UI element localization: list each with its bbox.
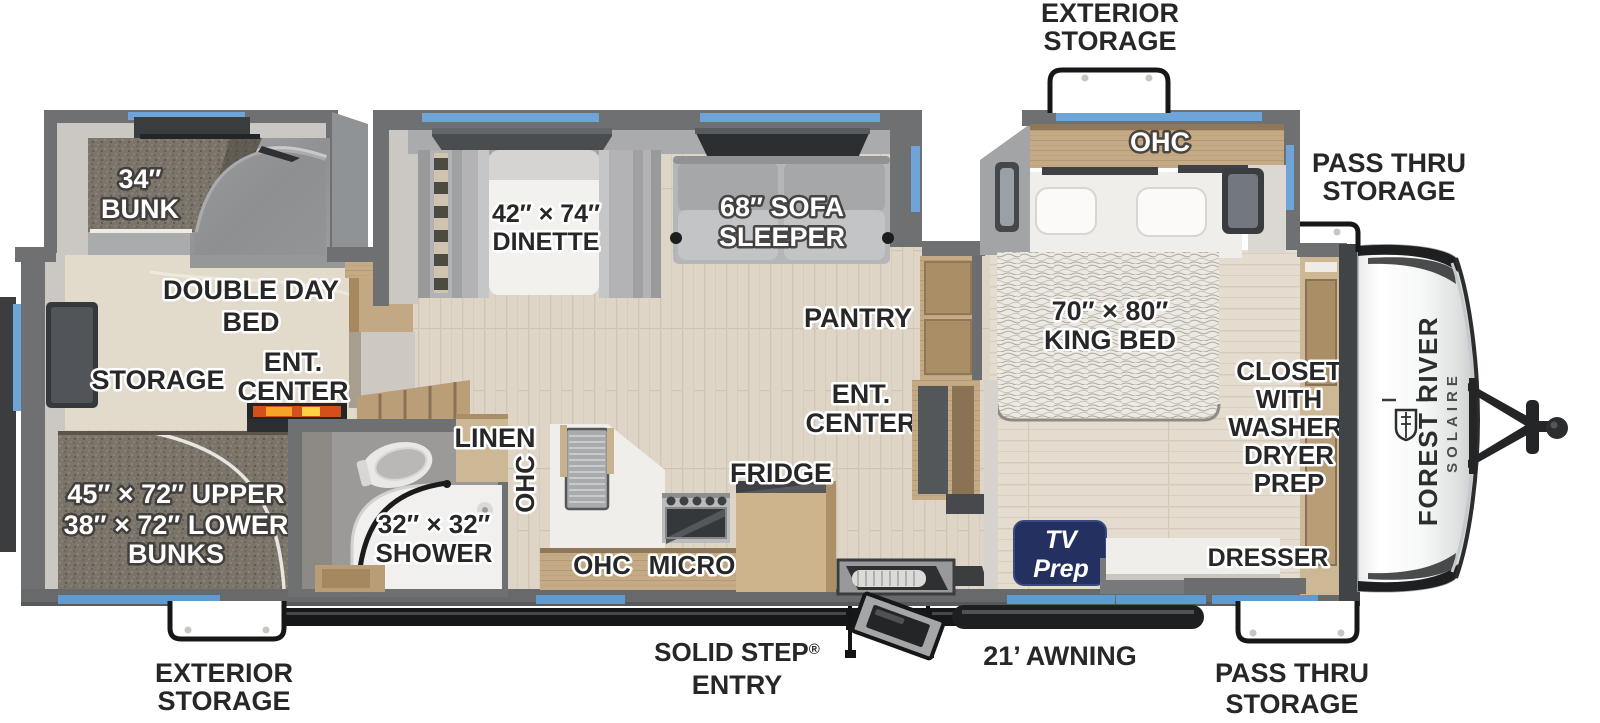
svg-text:PASS THRU: PASS THRU	[1215, 658, 1369, 688]
svg-text:42″ × 74″: 42″ × 74″	[492, 200, 600, 228]
svg-text:21’ AWNING: 21’ AWNING	[983, 641, 1137, 671]
svg-text:TV: TV	[1045, 526, 1079, 554]
svg-text:34″: 34″	[119, 164, 162, 194]
svg-text:BED: BED	[222, 307, 279, 337]
svg-text:STORAGE: STORAGE	[1225, 689, 1358, 719]
svg-text:OHC: OHC	[573, 550, 631, 580]
svg-text:FRIDGE: FRIDGE	[730, 458, 832, 488]
svg-text:DRYER: DRYER	[1244, 440, 1334, 470]
svg-text:70″ × 80″: 70″ × 80″	[1052, 296, 1169, 326]
svg-text:SOLAIRE: SOLAIRE	[1444, 371, 1461, 473]
svg-text:LINEN: LINEN	[455, 423, 536, 453]
svg-text:STORAGE: STORAGE	[1322, 176, 1455, 206]
svg-text:32″ × 32″: 32″ × 32″	[378, 509, 490, 539]
svg-text:PASS THRU: PASS THRU	[1312, 148, 1466, 178]
svg-text:WASHER/: WASHER/	[1228, 412, 1349, 442]
svg-text:Prep: Prep	[1033, 555, 1089, 583]
svg-text:DRESSER: DRESSER	[1208, 544, 1329, 572]
svg-text:38″ × 72″ LOWER: 38″ × 72″ LOWER	[64, 510, 289, 540]
svg-text:45″ × 72″ UPPER: 45″ × 72″ UPPER	[67, 479, 284, 509]
svg-text:DINETTE: DINETTE	[493, 228, 600, 256]
svg-text:PREP: PREP	[1254, 468, 1325, 498]
svg-text:ENTRY: ENTRY	[692, 670, 783, 700]
svg-text:CLOSET: CLOSET	[1236, 356, 1342, 386]
svg-text:OHC: OHC	[510, 455, 540, 513]
svg-text:SLEEPER: SLEEPER	[719, 222, 845, 252]
svg-text:CENTER: CENTER	[805, 408, 916, 438]
svg-text:STORAGE: STORAGE	[1043, 26, 1176, 56]
svg-text:WITH: WITH	[1256, 384, 1322, 414]
svg-text:ENT.: ENT.	[264, 347, 323, 377]
svg-text:SHOWER: SHOWER	[376, 538, 493, 568]
svg-text:STORAGE: STORAGE	[91, 365, 224, 395]
svg-text:OHC: OHC	[1130, 127, 1190, 157]
svg-text:MICRO: MICRO	[649, 550, 736, 580]
svg-text:KING BED: KING BED	[1044, 325, 1176, 355]
svg-text:DOUBLE DAY: DOUBLE DAY	[163, 275, 339, 305]
svg-text:BUNKS: BUNKS	[128, 539, 224, 569]
svg-text:ENT.: ENT.	[832, 379, 891, 409]
svg-text:FOREST RIVER: FOREST RIVER	[1413, 316, 1443, 526]
svg-text:SOLID STEP®: SOLID STEP®	[654, 637, 820, 667]
svg-text:BUNK: BUNK	[101, 194, 179, 224]
svg-text:EXTERIOR: EXTERIOR	[1041, 0, 1179, 28]
svg-text:STORAGE: STORAGE	[157, 686, 290, 716]
svg-text:68″ SOFA: 68″ SOFA	[720, 192, 844, 222]
svg-text:EXTERIOR: EXTERIOR	[155, 658, 293, 688]
svg-text:PANTRY: PANTRY	[804, 303, 912, 333]
svg-text:CENTER: CENTER	[237, 376, 348, 406]
